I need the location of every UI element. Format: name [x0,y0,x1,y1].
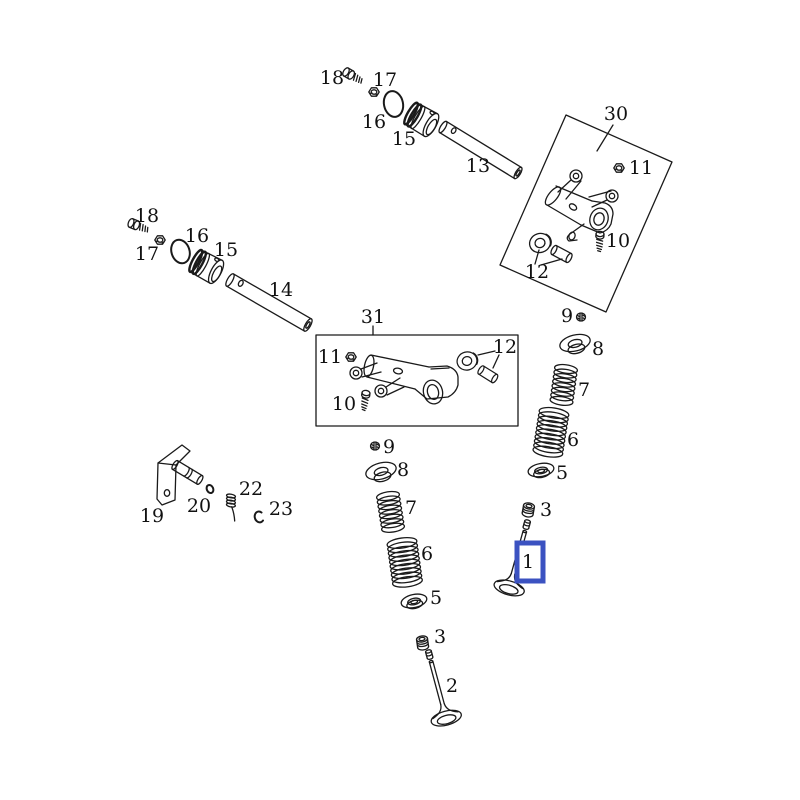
callout-15-left: 15 [214,239,238,261]
diagram-linework [127,67,672,729]
part-9-keepers-center [371,442,380,450]
part-12-roller-31 [455,349,480,372]
part-6-outer-spring-center [386,536,423,589]
callout-9-center: 9 [383,436,395,458]
part-6-outer-spring-right [532,406,569,459]
callout-10-box31: 10 [332,393,356,415]
part-5-seal-right [527,461,555,479]
callout-16-left: 16 [185,225,209,247]
callout-30: 30 [604,103,628,125]
part-12-roller-30 [527,230,554,255]
callout-17-left: 17 [135,243,159,265]
part-12-pin-31 [477,365,499,384]
callout-5-center: 5 [430,587,442,609]
callout-6-right: 6 [567,429,579,451]
callout-12-box31: 12 [493,336,517,358]
callout-11-box31: 11 [318,346,342,368]
callout-15-top: 15 [392,128,416,150]
callout-3-right: 3 [540,499,552,521]
part-8-retainer-right [558,331,593,356]
callout-13: 13 [466,155,490,177]
part-10-screw-31 [360,390,371,411]
callout-18-top: 18 [320,67,344,89]
callout-9-right: 9 [561,305,573,327]
callout-8-right: 8 [592,338,604,360]
callout-10-box30: 10 [606,230,630,252]
callout-1-highlighted: 1 [522,551,534,573]
part-22-spring [222,493,239,521]
callout-18-left: 18 [135,205,159,227]
callout-8-center: 8 [397,459,409,481]
callout-11-box30: 11 [629,157,653,179]
callout-12-box30: 12 [525,261,549,283]
part-9-keepers-right [577,313,586,321]
callout-2: 2 [446,675,458,697]
callout-17-top: 17 [373,69,397,91]
part-11-nut-30 [614,164,624,172]
callout-14: 14 [269,279,293,301]
parts-diagram-page: 18 17 16 15 13 30 11 10 12 18 17 16 15 1… [0,0,800,800]
callout-3-center: 3 [434,626,446,648]
part-18-bolt-top [341,67,364,86]
leader-line-30 [597,125,613,151]
callout-7-right: 7 [578,379,590,401]
callout-16-top: 16 [362,111,386,133]
callout-31: 31 [361,306,385,328]
part-12-pin-30 [550,245,574,264]
callout-19: 19 [140,505,164,527]
part-7-inner-spring-right [550,363,578,406]
part-20-oring [205,484,214,494]
part-10-screw-30 [595,231,604,251]
parts-diagram-canvas: 18 17 16 15 13 30 11 10 12 18 17 16 15 1… [0,0,800,800]
part-7-inner-spring-center [376,490,405,534]
part-5-seal-center [400,592,428,611]
part-3-cap-right [522,502,535,518]
part-3-cap-center [416,635,429,650]
part-8-retainer-center [364,459,399,485]
callout-5-right: 5 [556,462,568,484]
part-23-clip [255,512,263,523]
callout-6-center: 6 [421,543,433,565]
callout-23: 23 [269,498,293,520]
part-11-nut-31 [346,353,356,361]
callout-20: 20 [187,495,211,517]
callout-7-center: 7 [405,497,417,519]
callout-22: 22 [239,478,263,500]
